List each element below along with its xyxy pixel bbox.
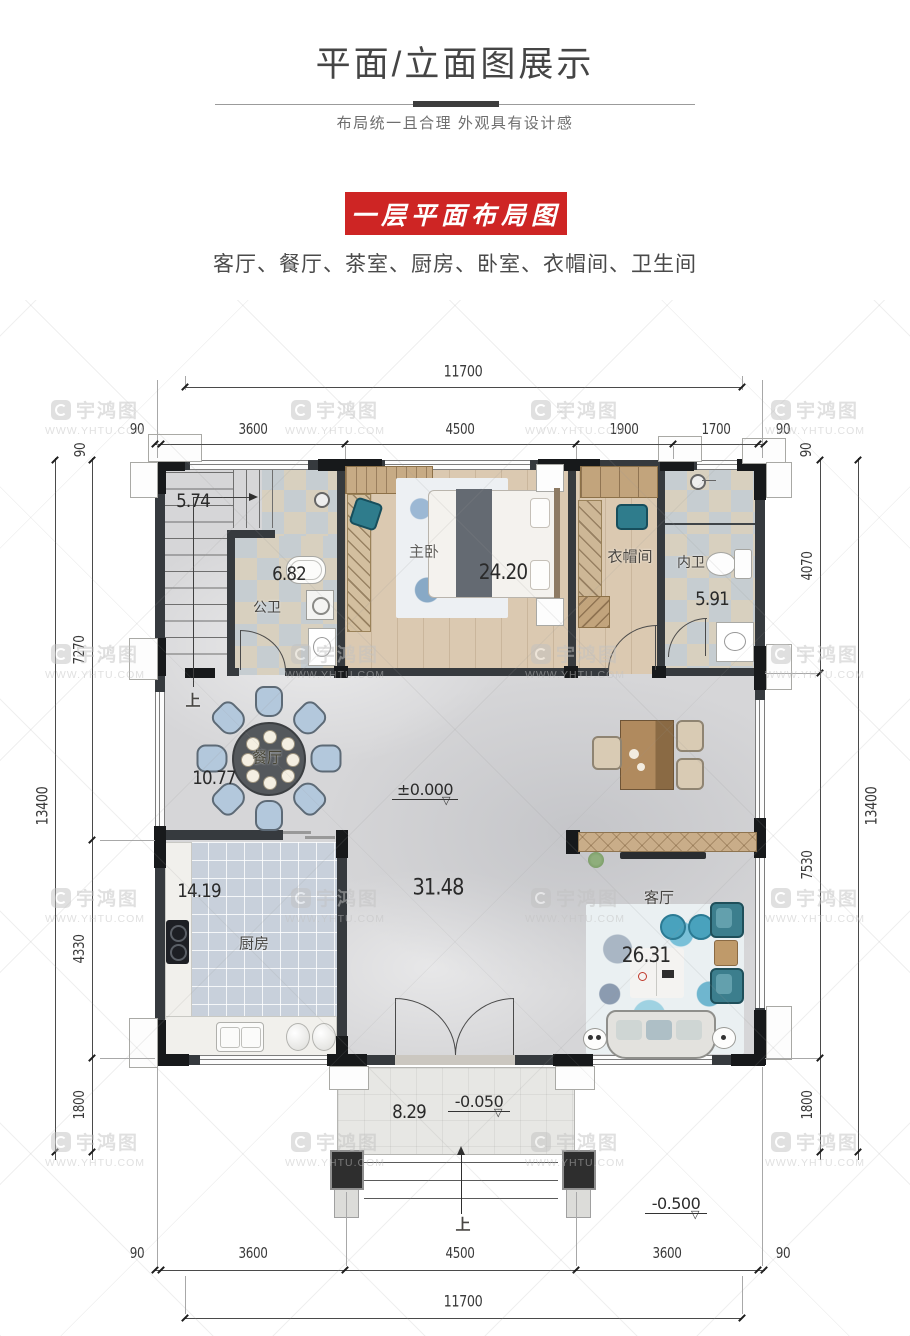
dining-chair	[255, 800, 283, 831]
toilet-tank	[734, 549, 752, 579]
kitchen-area-value: 14.19	[177, 880, 220, 902]
porch-column	[562, 1150, 596, 1190]
entry-door-leaf	[395, 998, 396, 1055]
dim-ext	[345, 446, 346, 459]
stair-up-label: 上	[185, 690, 200, 711]
kitchen-label: 厨房	[239, 933, 269, 954]
window-top-3	[697, 460, 741, 470]
tea-tray	[637, 763, 645, 771]
dim-line	[55, 458, 56, 1160]
clover-side-table	[712, 1027, 736, 1049]
armchair	[710, 902, 744, 938]
window-sill-box	[329, 1066, 369, 1090]
entry-threshold	[395, 1055, 515, 1065]
floor-stool	[660, 914, 686, 940]
dim-bottom-1: 3600	[239, 1244, 268, 1262]
window-sill-box	[766, 644, 792, 690]
up-arrow-icon	[457, 1146, 465, 1155]
pier	[336, 830, 348, 858]
pier	[731, 1054, 765, 1066]
pier	[334, 666, 348, 678]
dim-top-0: 90	[130, 420, 144, 438]
table-decor	[638, 972, 647, 981]
dim-top-3: 1900	[610, 420, 639, 438]
stove-icon	[166, 920, 189, 964]
window-sill-box	[129, 638, 158, 680]
sink-basin	[313, 637, 331, 657]
plate	[286, 753, 300, 767]
porch-up-arrow-line	[461, 1154, 462, 1214]
side-table	[714, 940, 738, 966]
public-bath-label: 公卫	[253, 597, 281, 617]
room-list: 客厅、餐厅、茶室、厨房、卧室、衣帽间、卫生间	[0, 248, 910, 278]
cloakroom-stool	[616, 504, 648, 530]
level-triangle-icon: ▽	[494, 1107, 502, 1118]
dining-area-value: 10.77	[192, 767, 235, 789]
sink-basin	[241, 1027, 261, 1048]
bed-pillow	[530, 498, 550, 528]
shower-icon	[690, 474, 706, 490]
dim-bottom-3: 3600	[653, 1244, 682, 1262]
stair-direction-arrow-icon	[249, 493, 258, 501]
sofa-cushion	[646, 1020, 672, 1040]
tv-icon	[620, 852, 706, 859]
public-bath-area-value: 6.82	[272, 563, 306, 585]
nightstand	[536, 598, 564, 626]
window-bottom-1	[200, 1055, 328, 1065]
wall-bedroom-zone-south	[656, 668, 765, 676]
living-label: 客厅	[644, 887, 674, 908]
dim-left-0: 90	[71, 443, 89, 457]
kitchen-sink	[216, 1022, 264, 1052]
level-triangle-icon: ▽	[442, 795, 450, 806]
section-banner: 一层平面布局图	[345, 192, 567, 235]
page-subtitle: 布局统一且合理 外观具有设计感	[0, 112, 910, 133]
pier	[553, 1054, 593, 1066]
window-sill-box	[658, 436, 702, 462]
hall-area-value: 31.48	[412, 876, 463, 901]
dim-ext	[100, 840, 155, 841]
armchair	[710, 968, 744, 1004]
dim-left-3: 1800	[70, 1091, 88, 1120]
dim-bottom-2: 4500	[446, 1244, 475, 1262]
sofa-cushion	[676, 1020, 702, 1040]
kitchen-floor	[190, 842, 337, 1016]
stair-direction-line	[193, 497, 194, 687]
dim-top-5: 90	[776, 420, 790, 438]
stair-area-value: 5.74	[176, 490, 210, 512]
wall-public-bath-west	[227, 536, 235, 674]
dim-right-2: 7530	[798, 851, 816, 880]
tea-chair	[676, 758, 704, 790]
table-dot	[596, 1035, 601, 1040]
porch-column-footing	[566, 1186, 591, 1218]
window-sill-box	[766, 462, 792, 498]
sofa-cushion	[616, 1020, 642, 1040]
cushion	[716, 908, 732, 928]
dim-line	[185, 1318, 742, 1319]
ensuite-door-leaf	[705, 618, 706, 656]
public-bath-door-leaf	[240, 630, 241, 670]
window-sill-box	[766, 1006, 792, 1060]
level-marker-porch: -0.050▽	[448, 1092, 510, 1112]
dim-bottom-total: 11700	[444, 1292, 483, 1311]
dining-chair	[311, 745, 342, 773]
bed-headboard	[554, 488, 560, 598]
porch-up-label: 上	[455, 1214, 470, 1235]
dim-ext	[742, 1276, 743, 1314]
dim-ext	[100, 1058, 155, 1059]
title-divider-accent	[413, 101, 499, 107]
plate	[263, 730, 277, 744]
wall-cloakroom-ensuite	[657, 460, 665, 668]
plate	[281, 769, 295, 783]
dim-ext	[185, 1276, 186, 1314]
level-triangle-icon: ▽	[691, 1209, 699, 1220]
tea-chair	[592, 736, 622, 770]
cloakroom-cabinet-bottom	[578, 596, 610, 628]
entry-door-leaf	[513, 998, 514, 1055]
dim-ext	[157, 1067, 158, 1266]
pier	[185, 668, 215, 678]
washing-machine	[306, 590, 334, 620]
pier	[564, 666, 578, 678]
wall-bedroom-cloakroom	[568, 460, 576, 668]
washer-drum	[312, 597, 330, 615]
cloakroom-door-leaf	[655, 625, 656, 670]
master-bedroom-label: 主卧	[409, 541, 439, 562]
table-dot	[588, 1035, 593, 1040]
shower-arm	[702, 480, 716, 481]
window-sill-box	[130, 462, 158, 498]
porch-column	[330, 1150, 364, 1190]
living-area-value: 26.31	[622, 943, 671, 967]
wall-public-bath-north	[227, 530, 275, 538]
pier	[754, 646, 766, 690]
window-sill-box	[555, 1066, 595, 1090]
dim-line	[185, 387, 742, 388]
shower-icon	[314, 492, 330, 508]
dim-top-4: 1700	[702, 420, 731, 438]
dim-right-1: 4070	[798, 552, 816, 581]
bed-pillow	[530, 560, 550, 590]
burner	[170, 925, 187, 942]
dim-ext	[765, 673, 820, 674]
media-wall	[578, 832, 757, 852]
dim-bottom-4: 90	[776, 1244, 790, 1262]
public-bath-vanity	[308, 628, 336, 666]
wall-kitchen-east	[337, 830, 347, 1065]
pier	[155, 1054, 189, 1066]
dim-line	[858, 458, 859, 1160]
dim-top-2: 4500	[446, 420, 475, 438]
plate	[246, 769, 260, 783]
window-top-1	[190, 460, 308, 470]
dim-left-total: 13400	[33, 787, 52, 826]
dim-line	[155, 1270, 765, 1271]
sink-basin	[724, 632, 746, 651]
cloakroom-label: 衣帽间	[607, 546, 652, 567]
pier	[336, 1036, 348, 1066]
dim-ext	[576, 1192, 577, 1266]
page-title: 平面/立面图展示	[0, 36, 910, 87]
pier	[154, 826, 166, 868]
ensuite-bath-area-value: 5.91	[695, 588, 729, 610]
dining-chair	[255, 686, 283, 717]
level-marker-yard: -0.500▽	[645, 1194, 707, 1214]
dim-right-total: 13400	[862, 787, 881, 826]
window-sill-box	[129, 1018, 158, 1068]
dim-ext	[576, 446, 577, 459]
dim-ext	[346, 1192, 347, 1266]
dim-ext	[673, 446, 674, 459]
dining-label: 餐厅	[252, 747, 282, 768]
dim-ext	[762, 1067, 763, 1266]
dim-right-3: 1800	[798, 1091, 816, 1120]
dim-top-1: 3600	[239, 420, 268, 438]
dim-left-2: 4330	[70, 935, 88, 964]
dim-left-1: 7270	[70, 636, 88, 665]
tea-table	[620, 720, 674, 790]
kitchen-sliding-door	[305, 836, 335, 839]
wall-bedroom-west	[337, 460, 345, 668]
dim-right-0: 90	[797, 443, 815, 457]
wall-kitchen-north	[155, 830, 283, 840]
clover-side-table	[583, 1028, 607, 1050]
ensuite-vanity	[716, 622, 754, 662]
table-decor	[662, 970, 674, 978]
tea-tray	[629, 749, 639, 759]
tea-chair	[676, 720, 704, 752]
dim-ext	[765, 1058, 820, 1059]
burner	[170, 944, 187, 961]
ensuite-bath-label: 内卫	[677, 552, 705, 572]
porch-area-value: 8.29	[392, 1101, 426, 1123]
water-jar	[286, 1023, 310, 1051]
ensuite-divider	[665, 523, 755, 525]
level-marker-ground: ±0.000▽	[392, 780, 458, 800]
cloakroom-cabinet-top	[580, 466, 658, 498]
plant-icon	[588, 852, 604, 868]
water-jar	[312, 1023, 336, 1051]
toilet-icon	[706, 552, 736, 576]
dim-top-total: 11700	[444, 362, 483, 381]
page: 平面/立面图展示 布局统一且合理 外观具有设计感 一层平面布局图 客厅、餐厅、茶…	[0, 0, 910, 1336]
sofa	[606, 1010, 716, 1059]
sink-basin	[220, 1027, 240, 1048]
pier	[754, 460, 766, 500]
plate	[263, 776, 277, 790]
section-banner-label: 一层平面布局图	[351, 196, 561, 232]
cushion	[716, 974, 732, 994]
dim-bottom-0: 90	[130, 1244, 144, 1262]
table-dot	[721, 1035, 726, 1040]
kitchen-sliding-door	[283, 831, 311, 834]
plate	[281, 737, 295, 751]
master-bedroom-area-value: 24.20	[479, 560, 528, 584]
window-left	[155, 692, 165, 828]
